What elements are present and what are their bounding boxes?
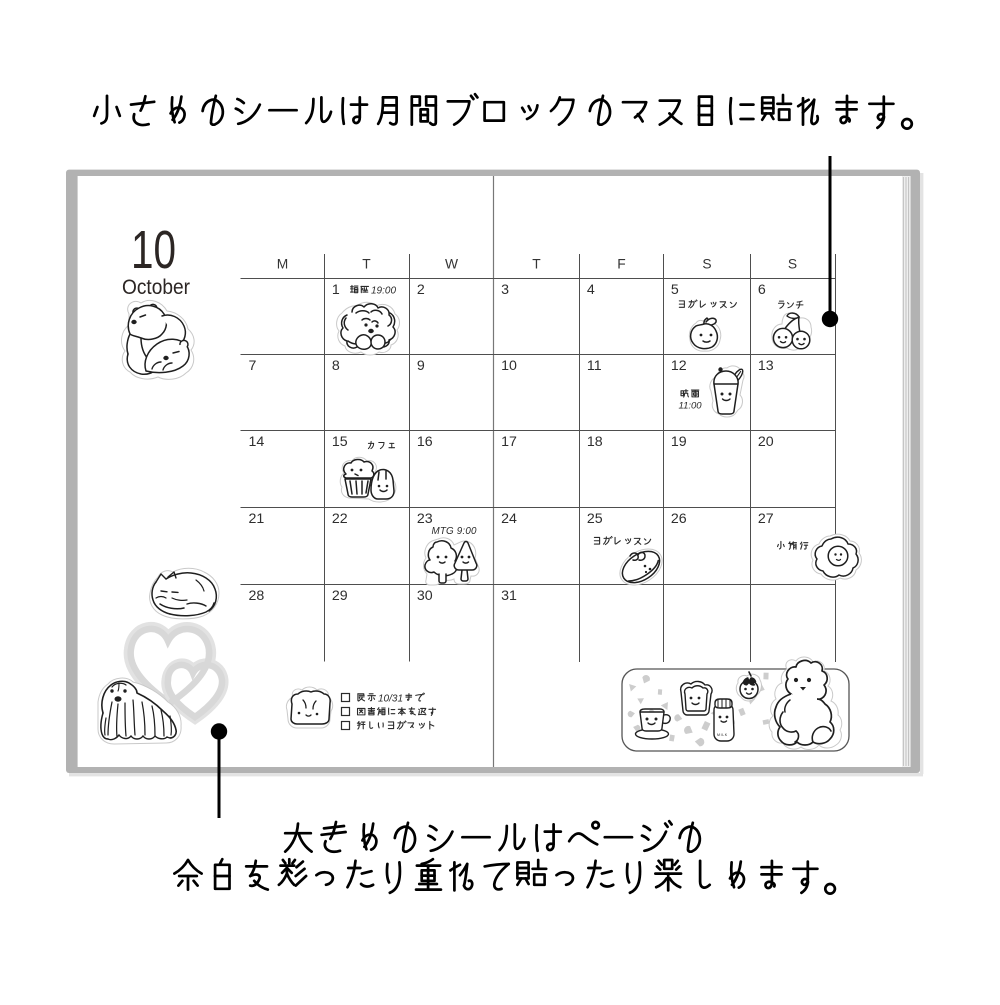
svg-text:10/31: 10/31 bbox=[378, 694, 403, 705]
svg-text:24: 24 bbox=[501, 511, 517, 527]
svg-text:30: 30 bbox=[417, 588, 433, 604]
svg-text:4: 4 bbox=[587, 282, 595, 298]
svg-text:19: 19 bbox=[671, 434, 687, 450]
svg-text:2: 2 bbox=[417, 282, 425, 298]
svg-text:3: 3 bbox=[501, 282, 509, 298]
svg-text:T: T bbox=[362, 257, 371, 272]
svg-text:18: 18 bbox=[587, 434, 603, 450]
svg-text:13: 13 bbox=[758, 358, 774, 374]
svg-text:12: 12 bbox=[671, 358, 687, 374]
svg-text:MTG 9:00: MTG 9:00 bbox=[432, 526, 478, 537]
svg-text:6: 6 bbox=[758, 282, 766, 298]
svg-text:26: 26 bbox=[671, 511, 687, 527]
svg-text:9: 9 bbox=[417, 358, 425, 374]
svg-text:10: 10 bbox=[131, 221, 176, 280]
svg-text:W: W bbox=[445, 257, 458, 272]
svg-text:20: 20 bbox=[758, 434, 774, 450]
svg-text:October: October bbox=[122, 276, 190, 299]
svg-text:F: F bbox=[617, 257, 625, 272]
svg-text:16: 16 bbox=[417, 434, 433, 450]
svg-text:14: 14 bbox=[249, 434, 265, 450]
svg-text:22: 22 bbox=[332, 511, 348, 527]
svg-text:7: 7 bbox=[249, 358, 257, 374]
svg-text:19:00: 19:00 bbox=[371, 286, 396, 297]
svg-text:21: 21 bbox=[249, 511, 265, 527]
svg-text:10: 10 bbox=[501, 358, 517, 374]
svg-text:1: 1 bbox=[332, 282, 340, 298]
svg-text:T: T bbox=[532, 257, 541, 272]
svg-text:28: 28 bbox=[249, 588, 265, 604]
svg-text:25: 25 bbox=[587, 511, 603, 527]
svg-text:27: 27 bbox=[758, 511, 774, 527]
svg-text:11:00: 11:00 bbox=[679, 401, 703, 412]
svg-text:S: S bbox=[788, 257, 797, 272]
svg-text:8: 8 bbox=[332, 358, 340, 374]
svg-text:29: 29 bbox=[332, 588, 348, 604]
svg-text:23: 23 bbox=[417, 511, 433, 527]
svg-text:11: 11 bbox=[587, 358, 602, 374]
svg-text:31: 31 bbox=[501, 588, 517, 604]
svg-text:17: 17 bbox=[501, 434, 517, 450]
svg-text:5: 5 bbox=[671, 282, 679, 298]
svg-text:MILK: MILK bbox=[717, 733, 728, 737]
svg-text:15: 15 bbox=[332, 434, 348, 450]
svg-text:M: M bbox=[277, 257, 289, 272]
svg-text:S: S bbox=[702, 257, 711, 272]
